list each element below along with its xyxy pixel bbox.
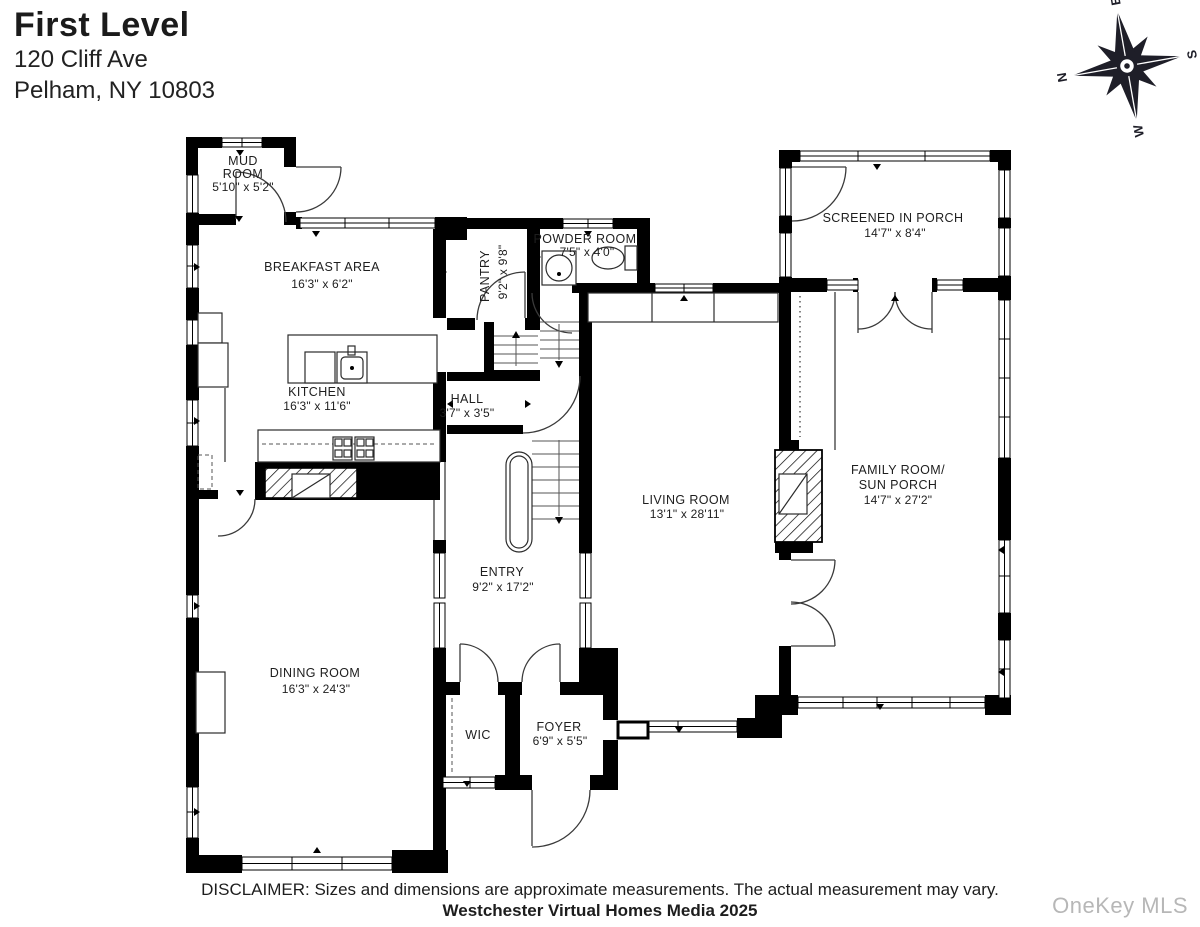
- page-title: First Level: [14, 6, 215, 45]
- onekey-mls-watermark: OneKey MLS: [1052, 893, 1188, 919]
- plan-footer: DISCLAIMER: Sizes and dimensions are app…: [0, 880, 1200, 921]
- room-dims-foyer: 6'9" x 5'5": [533, 734, 588, 748]
- disclaimer-text: DISCLAIMER: Sizes and dimensions are app…: [0, 880, 1200, 900]
- floor-plan-page: First Level 120 Cliff Ave Pelham, NY 108…: [0, 0, 1200, 927]
- media-credit: Westchester Virtual Homes Media 2025: [0, 901, 1200, 921]
- room-label-living-room: LIVING ROOM: [642, 493, 730, 507]
- room-dims-pantry: 9'2" x 9'8": [496, 245, 510, 300]
- room-dims-breakfast-area: 16'3" x 6'2": [291, 277, 353, 291]
- room-dims-entry: 9'2" x 17'2": [472, 580, 534, 594]
- room-dims-hall: 3'7" x 3'5": [440, 406, 495, 420]
- room-dims-kitchen: 16'3" x 11'6": [283, 399, 351, 413]
- plan-header: First Level 120 Cliff Ave Pelham, NY 108…: [14, 6, 215, 107]
- room-label-family-room-line2: SUN PORCH: [859, 478, 938, 492]
- compass-north-label: N: [1054, 72, 1070, 84]
- compass-east-label: E: [1107, 0, 1123, 7]
- room-label-dining-room: DINING ROOM: [270, 666, 361, 680]
- room-dims-dining-room: 16'3" x 24'3": [282, 682, 350, 696]
- room-label-screened-porch: SCREENED IN PORCH: [823, 211, 964, 225]
- staircase: [494, 322, 579, 552]
- room-label-entry: ENTRY: [480, 565, 524, 579]
- address-line1: 120 Cliff Ave: [14, 45, 215, 76]
- room-dims-family-room: 14'7" x 27'2": [864, 493, 932, 507]
- room-label-foyer: FOYER: [536, 720, 581, 734]
- room-label-mud-room-line1: MUD: [228, 154, 258, 168]
- front-stoop: [618, 722, 648, 738]
- compass-rose: N E S W: [1042, 0, 1200, 150]
- compass-south-label: S: [1184, 49, 1200, 60]
- room-label-family-room-line1: FAMILY ROOM/: [851, 463, 945, 477]
- kitchen-island: [288, 335, 437, 383]
- room-label-mud-room-line2: ROOM: [223, 167, 264, 181]
- room-label-hall: HALL: [451, 392, 484, 406]
- room-label-pantry: PANTRY: [478, 250, 492, 302]
- address-line2: Pelham, NY 10803: [14, 76, 215, 107]
- room-dims-mud-room: 5'10" x 5'2": [212, 180, 274, 194]
- room-label-breakfast-area: BREAKFAST AREA: [264, 260, 380, 274]
- floor-plan-drawing: MUD ROOM 5'10" x 5'2" BREAKFAST AREA 16'…: [0, 0, 1200, 927]
- compass-west-label: W: [1130, 123, 1147, 138]
- room-label-kitchen: KITCHEN: [288, 385, 346, 399]
- stair-banister: [506, 452, 532, 552]
- kitchen-chimney-hatch: [265, 468, 357, 498]
- room-label-wic: WIC: [465, 728, 491, 742]
- room-dims-living-room: 13'1" x 28'11": [650, 507, 724, 521]
- room-label-powder-room: POWDER ROOM: [533, 232, 636, 246]
- stair-treads: [494, 322, 579, 519]
- room-dims-screened-porch: 14'7" x 8'4": [864, 226, 926, 240]
- dining-sideboard: [196, 672, 225, 733]
- room-dims-powder-room: 7'5" x 4'0": [560, 245, 615, 259]
